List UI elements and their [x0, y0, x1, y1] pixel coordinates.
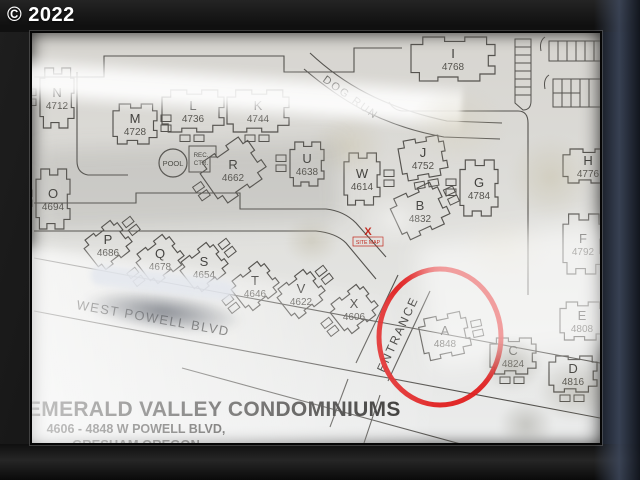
building-W-letter: W [356, 166, 369, 181]
building-V: V4622 [273, 258, 339, 321]
building-S-garage [218, 238, 230, 249]
building-D-letter: D [568, 361, 577, 376]
building-B-garage [443, 186, 455, 196]
building-T-number: 4646 [244, 289, 267, 300]
building-X-garage [321, 317, 333, 328]
building-Q-number: 4678 [149, 262, 172, 273]
building-F-letter: F [579, 231, 587, 246]
building-J: J4752 [397, 134, 451, 191]
building-N-garage [32, 99, 36, 106]
site-map-drawing: DOG RUN POOL REC. CTR. A4848B4832C4824D4… [32, 33, 600, 443]
building-X-garage [327, 325, 339, 336]
sign-address: 4606 - 4848 W POWELL BLVD, [47, 422, 226, 436]
building-P-number: 4686 [97, 248, 120, 259]
building-X: X4606 [315, 282, 381, 345]
building-P-letter: P [104, 232, 113, 247]
building-K-number: 4744 [247, 114, 270, 125]
building-X-number: 4606 [343, 312, 366, 323]
pool-label: POOL [163, 159, 184, 168]
building-O-number: 4694 [42, 202, 65, 213]
site-map-marker-label: SITE MAP [356, 240, 381, 246]
street-label: WEST POWELL BLVD [75, 297, 230, 339]
building-W: W4614 [344, 153, 394, 205]
building-J-number: 4752 [412, 161, 435, 172]
site-map-marker-x: X [364, 226, 372, 238]
building-S-letter: S [200, 254, 209, 269]
building-L-number: 4736 [182, 114, 205, 125]
building-V-garage [315, 265, 327, 276]
building-N-garage [32, 89, 36, 96]
building-V-letter: V [297, 281, 306, 296]
building-P-garage [128, 224, 140, 235]
building-M-number: 4728 [124, 127, 147, 138]
building-N-number: 4712 [46, 101, 69, 112]
building-D-number: 4816 [562, 377, 585, 388]
building-U-garage [276, 155, 286, 162]
building-H-letter: H [583, 153, 592, 168]
building-F-number: 4792 [572, 247, 595, 258]
building-U-letter: U [302, 151, 311, 166]
building-W-number: 4614 [351, 182, 374, 193]
building-D: D4816 [549, 356, 597, 402]
building-R-letter: R [228, 157, 237, 172]
site-map-paper: DOG RUN POOL REC. CTR. A4848B4832C4824D4… [30, 31, 602, 445]
dog-run-label: DOG RUN [320, 74, 380, 122]
building-I-letter: I [451, 46, 455, 61]
building-O: O4694 [32, 169, 70, 229]
building-U: U4638 [276, 142, 324, 186]
building-I: I4768 [411, 37, 495, 81]
building-J-letter: J [420, 145, 427, 160]
building-X-letter: X [350, 296, 359, 311]
sign-city: GRESHAM OREGON [72, 437, 200, 443]
building-F: F4792 [563, 214, 600, 274]
rec-center-outline [189, 146, 216, 172]
building-A-letter: A [441, 323, 450, 338]
building-V-number: 4622 [290, 297, 313, 308]
building-C-garage [500, 377, 510, 384]
north-boundary-line [34, 48, 402, 77]
building-C-garage [514, 377, 524, 384]
rec-center-label-1: REC. [194, 152, 209, 159]
building-E: E4808 [560, 302, 600, 340]
building-H: H4776 [563, 149, 600, 183]
building-T-letter: T [251, 273, 259, 288]
building-D-garage [560, 395, 570, 402]
building-G-garage [446, 179, 456, 186]
building-R-garage [193, 182, 205, 193]
building-B-letter: B [416, 198, 425, 213]
sign-title: EMERALD VALLEY CONDOMINIUMS [32, 398, 401, 421]
copyright-watermark: © 2022 [7, 4, 75, 27]
building-L-garage [194, 135, 204, 142]
building-R-number: 4662 [222, 173, 245, 184]
building-B-garage [448, 195, 460, 205]
building-Q-letter: Q [155, 246, 165, 261]
building-V-garage [321, 273, 333, 284]
building-A-number: 4848 [434, 339, 457, 350]
building-W-garage [384, 180, 394, 187]
building-C-number: 4824 [502, 359, 525, 370]
building-D-garage [574, 395, 584, 402]
building-K-letter: K [254, 98, 263, 113]
frame-bottom [0, 444, 640, 480]
building-A-garage [471, 319, 482, 327]
building-T-garage [222, 294, 234, 305]
building-G-number: 4784 [468, 191, 491, 202]
building-U-garage [276, 165, 286, 172]
building-K-garage [245, 135, 255, 142]
building-L-letter: L [189, 98, 196, 113]
building-B-number: 4832 [409, 214, 432, 225]
framed-site-map-photo: DOG RUN POOL REC. CTR. A4848B4832C4824D4… [0, 0, 640, 480]
building-R-garage [198, 190, 210, 201]
building-W-garage [384, 170, 394, 177]
building-A-garage [473, 329, 484, 337]
building-T-garage [228, 302, 240, 313]
building-M-letter: M [130, 111, 141, 126]
building-U-number: 4638 [296, 167, 319, 178]
garage-carports [515, 37, 600, 110]
building-C-letter: C [508, 343, 517, 358]
dog-run: DOG RUN [304, 53, 502, 139]
building-S: S4654 [176, 231, 242, 294]
amenities: POOL REC. CTR. [159, 146, 216, 177]
rec-center-label-2: CTR. [194, 160, 209, 167]
building-T: T4646 [216, 259, 282, 322]
building-M-garage [161, 125, 171, 132]
left-column-road [77, 72, 128, 175]
building-K: K4744 [227, 90, 289, 142]
site-map-marker: X SITE MAP [353, 226, 383, 246]
building-N-letter: N [52, 85, 61, 100]
building-E-number: 4808 [571, 324, 594, 335]
building-A: A4848 [417, 308, 486, 362]
building-S-garage [224, 246, 236, 257]
building-O-letter: O [48, 186, 58, 201]
building-P-garage [122, 216, 134, 227]
building-G-letter: G [474, 175, 484, 190]
building-L-garage [180, 135, 190, 142]
building-S-number: 4654 [193, 270, 216, 281]
sign-title-block: EMERALD VALLEY CONDOMINIUMS 4606 - 4848 … [32, 398, 401, 443]
frame-top [0, 0, 640, 32]
building-E-letter: E [578, 308, 587, 323]
building-I-number: 4768 [442, 62, 465, 73]
building-B: B4832 [387, 174, 465, 242]
building-H-number: 4776 [577, 169, 600, 180]
building-K-garage [259, 135, 269, 142]
